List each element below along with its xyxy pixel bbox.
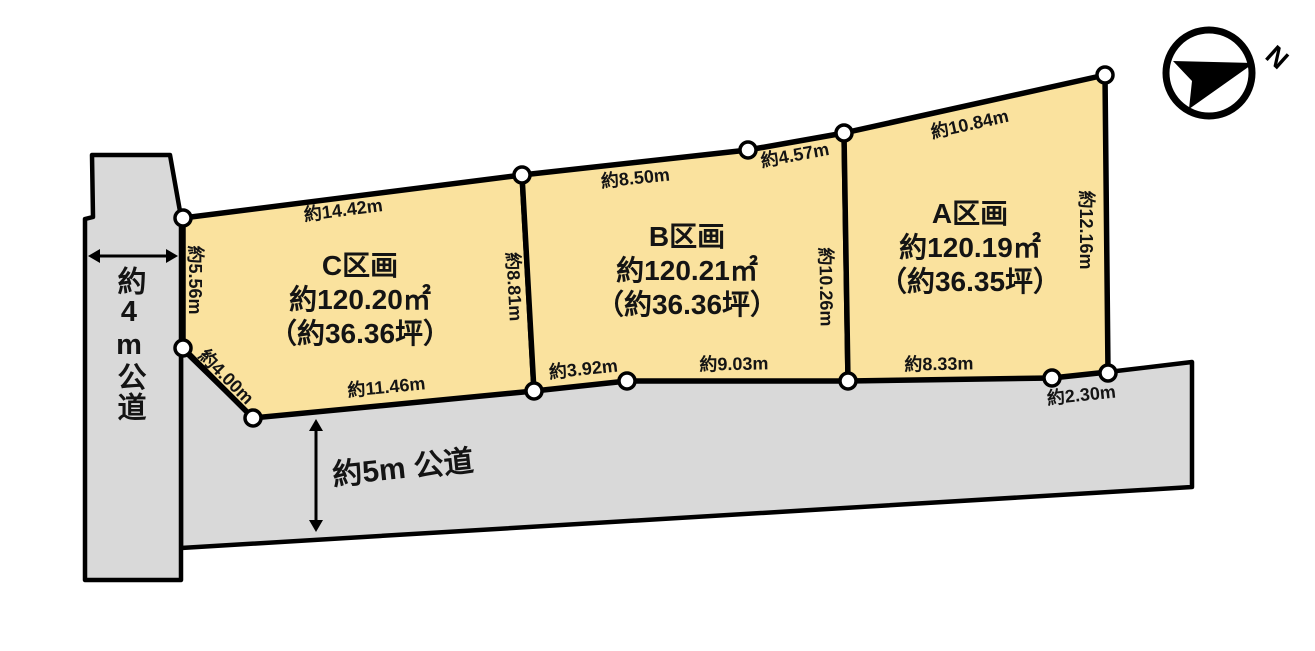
boundary-vertex xyxy=(514,167,530,183)
boundary-vertex xyxy=(840,373,856,389)
plot-area-m2: 約120.20㎡ xyxy=(235,283,485,317)
plot-name: C区画 xyxy=(235,249,485,283)
boundary-vertex xyxy=(619,373,635,389)
boundary-vertex xyxy=(526,383,542,399)
plot-b-label: B区画 約120.21㎡ （約36.36坪） xyxy=(562,220,812,322)
plot-area-tsubo: （約36.36坪） xyxy=(235,317,485,351)
boundary-vertex xyxy=(1097,67,1113,83)
boundary-vertex xyxy=(175,210,191,226)
road-left-label: 約4m公道 xyxy=(114,266,144,422)
boundary-vertex xyxy=(245,410,261,426)
dim-cb-boundary-label: 約8.81m xyxy=(502,252,527,322)
boundary-vertex xyxy=(1044,370,1060,386)
boundary-vertex xyxy=(740,142,756,158)
plot-area-m2: 約120.19㎡ xyxy=(845,231,1095,265)
plot-area-tsubo: （約36.35坪） xyxy=(845,265,1095,299)
site-plan-svg: 約14.42m 約8.50m 約4.57m 約10.84m 約5.56m 約4.… xyxy=(0,0,1315,651)
plot-name: A区画 xyxy=(845,197,1095,231)
dim-ba-boundary-label: 約10.26m xyxy=(815,247,837,326)
plot-area-tsubo: （約36.36坪） xyxy=(562,288,812,322)
compass: N xyxy=(1166,30,1294,116)
compass-north-label: N xyxy=(1260,40,1295,75)
site-plan: 約14.42m 約8.50m 約4.57m 約10.84m 約5.56m 約4.… xyxy=(0,0,1315,651)
boundary-vertex xyxy=(1100,365,1116,381)
plot-name: B区画 xyxy=(562,220,812,254)
boundary-vertex xyxy=(175,340,191,356)
dim-b-bottom-label: 約9.03m xyxy=(699,352,768,374)
dim-c-left-label: 約5.56m xyxy=(185,245,206,314)
dim-a-bottom-label: 約8.33m xyxy=(904,352,973,374)
boundary-vertex xyxy=(836,125,852,141)
plot-a-label: A区画 約120.19㎡ （約36.35坪） xyxy=(845,197,1095,299)
plot-c-label: C区画 約120.20㎡ （約36.36坪） xyxy=(235,249,485,351)
plot-area-m2: 約120.21㎡ xyxy=(562,254,812,288)
